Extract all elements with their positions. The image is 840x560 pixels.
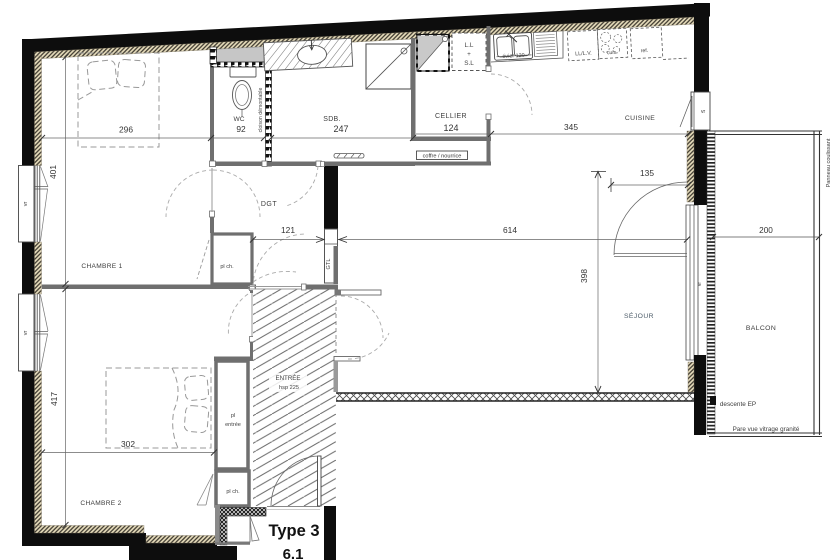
svg-text:417: 417 [49, 392, 59, 406]
svg-text:pl ch.: pl ch. [226, 489, 240, 495]
svg-text:+: + [467, 51, 471, 58]
svg-text:vr: vr [23, 202, 29, 207]
svg-text:Pare vue vitrage granité: Pare vue vitrage granité [733, 426, 800, 433]
svg-text:CHAMBRE 2: CHAMBRE 2 [80, 500, 121, 507]
svg-text:hsp 225: hsp 225 [279, 385, 299, 391]
svg-text:CELLIER: CELLIER [435, 113, 467, 120]
svg-text:121: 121 [281, 225, 295, 235]
svg-text:descente EP: descente EP [720, 401, 756, 408]
svg-text:398: 398 [579, 269, 589, 283]
svg-text:Type 3: Type 3 [268, 522, 319, 540]
svg-text:ref.: ref. [641, 48, 649, 54]
svg-text:DGT: DGT [261, 201, 278, 208]
svg-text:BALCON: BALCON [746, 325, 776, 332]
svg-text:614: 614 [503, 225, 517, 235]
svg-text:LL/L.V.: LL/L.V. [575, 51, 592, 58]
svg-text:ENTRÉE: ENTRÉE [275, 375, 300, 382]
svg-text:vr: vr [23, 331, 29, 336]
svg-text:124: 124 [443, 123, 458, 133]
svg-text:cloison démontable: cloison démontable [258, 88, 264, 133]
svg-text:401: 401 [48, 165, 58, 179]
svg-text:CUISINE: CUISINE [625, 115, 655, 122]
svg-text:SDB.: SDB. [323, 116, 341, 123]
svg-text:vr: vr [701, 109, 706, 115]
svg-text:135: 135 [640, 168, 654, 178]
svg-text:92: 92 [236, 124, 246, 134]
svg-text:296: 296 [119, 125, 133, 135]
svg-text:WC: WC [234, 116, 245, 123]
svg-text:345: 345 [564, 122, 578, 132]
svg-text:CHAMBRE 1: CHAMBRE 1 [81, 263, 122, 270]
svg-text:SÉJOUR: SÉJOUR [624, 311, 654, 320]
svg-text:200: 200 [759, 226, 773, 235]
svg-text:GTL: GTL [326, 259, 332, 270]
svg-text:cuis: cuis [607, 50, 617, 56]
svg-text:S.L: S.L [464, 60, 474, 67]
svg-text:entrée: entrée [225, 422, 241, 428]
svg-text:coffre / nourrice: coffre / nourrice [423, 154, 462, 160]
svg-text:247: 247 [333, 124, 348, 134]
svg-text:6.1: 6.1 [283, 546, 304, 560]
svg-text:vr: vr [697, 282, 703, 287]
svg-text:pl ch.: pl ch. [220, 264, 234, 270]
svg-text:Panneau coulissant: Panneau coulissant [826, 138, 832, 187]
svg-text:L.L: L.L [465, 42, 474, 49]
svg-text:pl: pl [231, 413, 235, 419]
svg-text:302: 302 [121, 439, 135, 449]
